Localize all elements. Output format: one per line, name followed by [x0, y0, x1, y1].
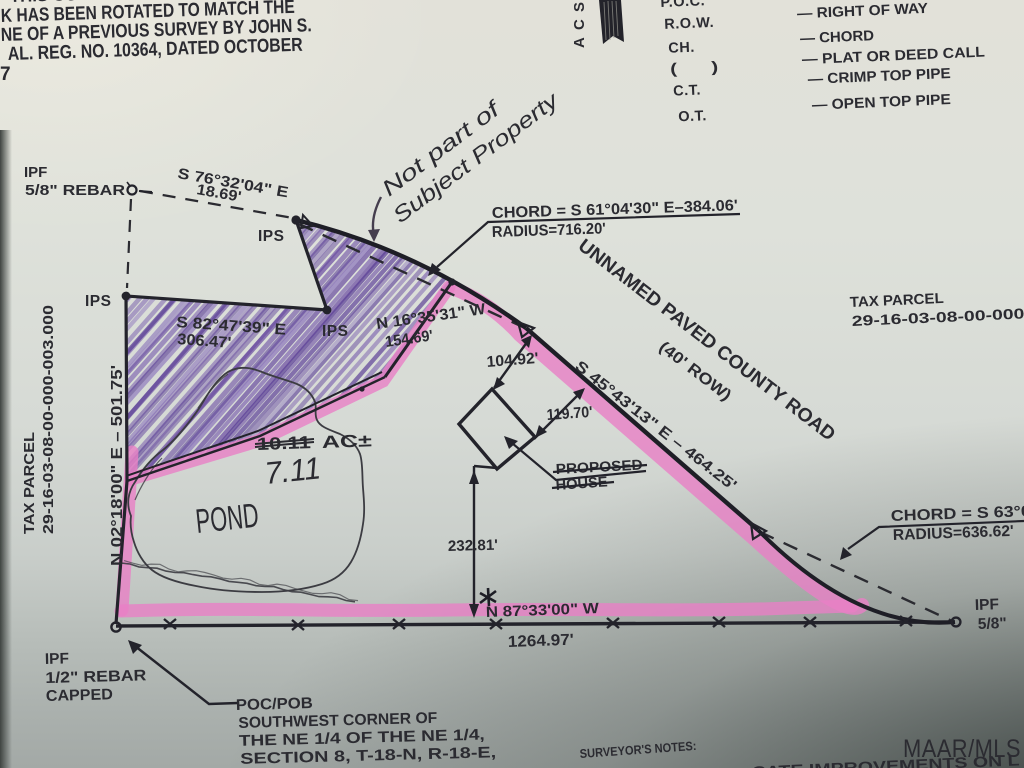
svg-text:5/8": 5/8"	[978, 615, 1007, 633]
svg-text:TAX PARCEL: TAX PARCEL	[22, 432, 38, 534]
svg-text:C: C	[571, 19, 588, 30]
svg-text:MAAR/MLS: MAAR/MLS	[903, 735, 1021, 763]
svg-text:7: 7	[0, 64, 11, 85]
svg-text:1264.97': 1264.97'	[508, 632, 575, 651]
svg-text:N 02°18'00" E – 501.75': N 02°18'00" E – 501.75'	[109, 365, 126, 566]
svg-text:IPS: IPS	[85, 293, 111, 310]
svg-text:POND: POND	[194, 497, 261, 541]
svg-text:1/2" REBAR: 1/2" REBAR	[45, 667, 146, 687]
svg-text:R.O.W.: R.O.W.	[664, 15, 714, 33]
svg-text:119.70': 119.70'	[546, 404, 593, 424]
svg-text:P.O.C.: P.O.C.	[660, 0, 705, 11]
svg-text:CH.: CH.	[668, 40, 695, 57]
svg-text:C.T.: C.T.	[673, 82, 701, 99]
svg-text:29-16-03-08-00-000-003.000: 29-16-03-08-00-000-003.000	[41, 305, 57, 534]
svg-text:IPF: IPF	[975, 596, 1000, 614]
svg-text:232.81': 232.81'	[448, 537, 498, 555]
svg-text:IPS: IPS	[322, 323, 348, 340]
svg-text:IPF: IPF	[24, 164, 47, 181]
svg-text:7.11: 7.11	[263, 450, 322, 491]
svg-text:CAPPED: CAPPED	[46, 686, 113, 705]
svg-text:IPS: IPS	[258, 228, 284, 245]
svg-text:O.T.: O.T.	[678, 108, 707, 125]
svg-text:S: S	[571, 2, 588, 12]
svg-text:( ): ( )	[670, 59, 719, 78]
svg-text:5/8" REBAR: 5/8" REBAR	[25, 182, 125, 199]
svg-text:— CHORD: — CHORD	[800, 28, 875, 47]
svg-text:IPF: IPF	[45, 650, 70, 668]
svg-text:POC/POB: POC/POB	[236, 695, 313, 714]
svg-text:A: A	[571, 37, 588, 48]
svg-text:AC±: AC±	[321, 430, 372, 452]
